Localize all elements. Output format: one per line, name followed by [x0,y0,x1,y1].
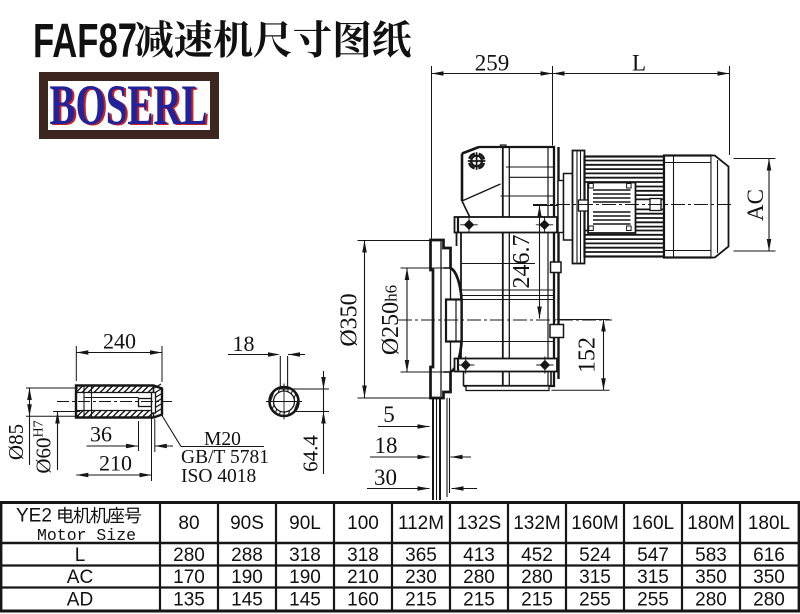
svg-text:318: 318 [289,545,321,566]
svg-text:18: 18 [233,331,255,356]
svg-text:259: 259 [475,51,510,76]
svg-text:132M: 132M [513,513,561,534]
svg-text:FAF87: FAF87 [33,15,137,68]
svg-text:112M: 112M [398,513,444,534]
svg-text:160M: 160M [571,513,619,534]
svg-text:315: 315 [637,567,669,588]
svg-text:AC: AC [67,567,93,588]
svg-text:350: 350 [695,567,727,588]
svg-text:L: L [75,545,86,566]
svg-text:Ø85: Ø85 [4,424,28,460]
svg-text:152: 152 [575,337,601,373]
svg-text:BOSERL: BOSERL [50,74,208,137]
svg-text:160: 160 [347,590,379,611]
svg-text:180L: 180L [748,513,790,534]
svg-text:280: 280 [753,590,785,611]
svg-text:280: 280 [521,567,553,588]
svg-text:Ø250h6: Ø250h6 [378,285,404,355]
svg-text:190: 190 [289,567,321,588]
svg-text:240: 240 [103,329,136,354]
svg-text:280: 280 [173,545,205,566]
svg-text:90L: 90L [289,513,321,534]
svg-text:280: 280 [695,590,727,611]
svg-text:145: 145 [231,590,263,611]
svg-text:210: 210 [99,451,132,476]
svg-text:215: 215 [405,590,437,611]
svg-text:255: 255 [637,590,669,611]
svg-text:100: 100 [347,513,379,534]
svg-text:135: 135 [173,590,205,611]
svg-text:5: 5 [383,402,395,427]
svg-text:ISO 4018: ISO 4018 [181,466,256,487]
svg-text:190: 190 [231,567,263,588]
svg-text:L: L [632,51,646,76]
svg-text:280: 280 [463,567,495,588]
svg-text:180M: 180M [687,513,735,534]
svg-text:GB/T 5781: GB/T 5781 [181,447,269,468]
svg-text:350: 350 [753,567,785,588]
svg-text:YE2: YE2 [16,506,52,527]
svg-text:132S: 132S [457,513,501,534]
svg-text:160L: 160L [632,513,674,534]
svg-text:80: 80 [178,513,199,534]
svg-text:AD: AD [67,590,93,611]
svg-text:230: 230 [405,567,437,588]
svg-text:288: 288 [231,545,263,566]
svg-text:Ø350: Ø350 [337,293,363,346]
svg-text:583: 583 [695,545,727,566]
svg-text:255: 255 [579,590,611,611]
svg-text:452: 452 [521,545,553,566]
svg-text:524: 524 [579,545,611,566]
svg-text:215: 215 [521,590,553,611]
svg-text:90S: 90S [230,513,264,534]
svg-text:210: 210 [347,567,379,588]
svg-text:18: 18 [375,433,398,458]
svg-text:AC: AC [743,189,768,221]
svg-text:215: 215 [463,590,495,611]
svg-text:616: 616 [753,545,785,566]
svg-text:413: 413 [463,545,495,566]
svg-text:318: 318 [347,545,379,566]
svg-text:30: 30 [374,465,397,490]
svg-text:547: 547 [637,545,669,566]
svg-text:365: 365 [405,545,437,566]
svg-text:Motor Size: Motor Size [37,526,136,545]
svg-text:315: 315 [579,567,611,588]
svg-text:170: 170 [173,567,205,588]
svg-text:145: 145 [289,590,321,611]
svg-text:64.4: 64.4 [298,435,322,472]
svg-text:246.7: 246.7 [509,235,535,289]
svg-text:36: 36 [90,422,112,447]
